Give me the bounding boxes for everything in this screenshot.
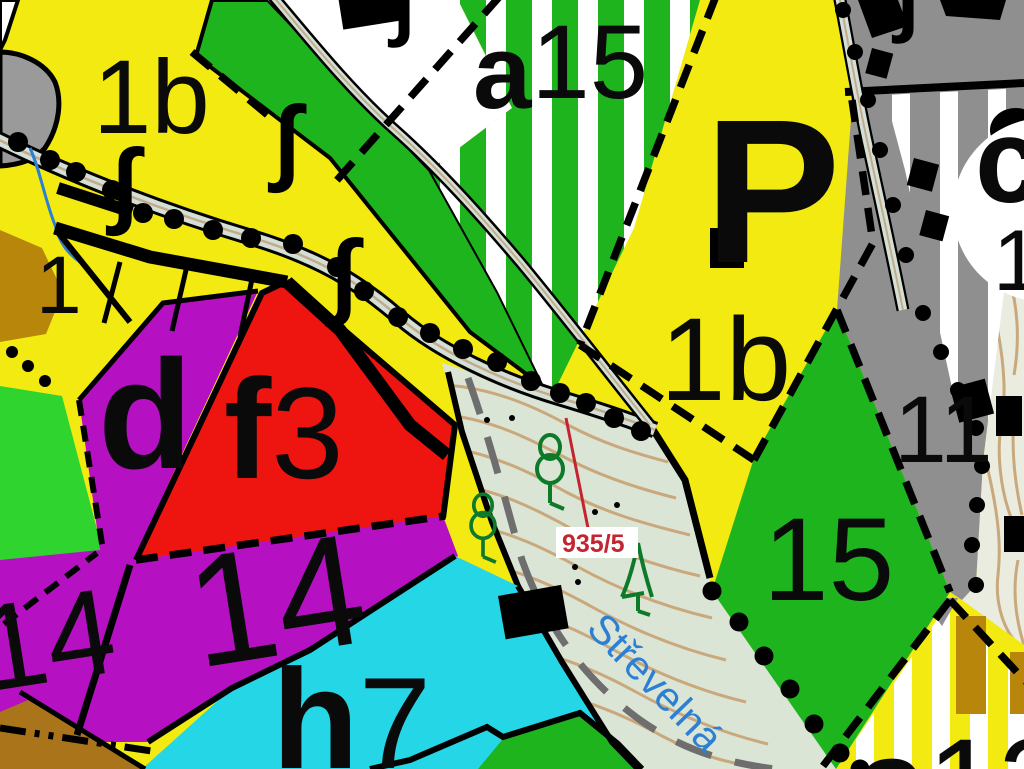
stand-label-1b-e: 1b [660,294,791,426]
building-pale-2 [996,396,1022,436]
stand-label-15: 15 [763,494,894,626]
parcel-label: 935/5 [562,530,625,558]
stand-label-c1: 1 [993,213,1024,309]
stand-label-1b-nw: 1b [93,39,210,156]
stand-label-14-west: 14 [0,562,124,718]
stand-label-d: d [98,328,193,501]
stand-label-p: P [704,77,841,306]
ochre-bar-2 [1010,652,1024,714]
stand-label-a13-se: a13 [856,713,1024,769]
stand-label-c: c [975,94,1024,228]
building-pale-3 [1004,516,1024,552]
stand-label-h7: h7 [272,640,431,769]
stand-label-1-west: 1 [36,240,82,331]
stand-label-f3: f3 [224,350,344,509]
stand-label-11: 11 [894,377,993,483]
forest-stand-map: 935/5 Střevelná 1b a15 P 1b c 1 11 15 d … [0,0,1024,769]
stand-label-a15: a15 [473,4,648,131]
